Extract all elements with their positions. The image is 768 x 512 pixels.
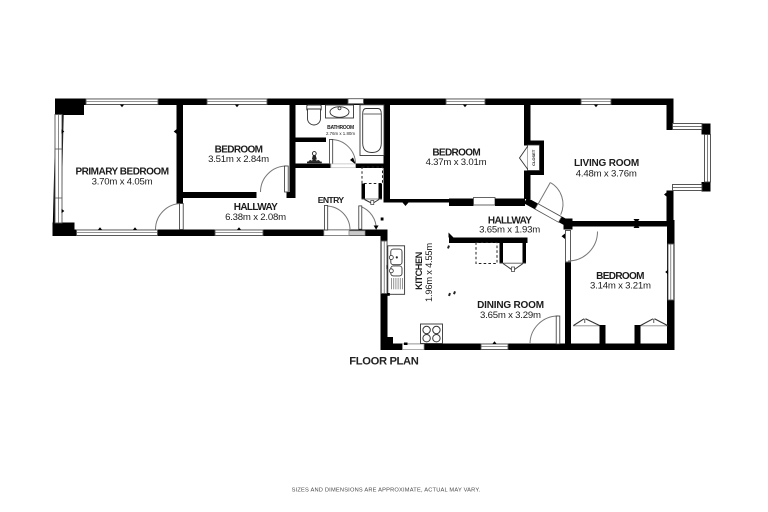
svg-text:6.38m x 2.08m: 6.38m x 2.08m — [225, 212, 286, 223]
svg-text:CLOSET: CLOSET — [531, 149, 536, 166]
svg-text:3.14m x 3.21m: 3.14m x 3.21m — [590, 281, 651, 292]
svg-text:1.96m x 4.55m: 1.96m x 4.55m — [424, 243, 434, 302]
svg-text:3.70m x 4.05m: 3.70m x 4.05m — [92, 176, 153, 187]
svg-text:KITCHEN: KITCHEN — [414, 251, 424, 289]
svg-text:3.65m x 1.93m: 3.65m x 1.93m — [479, 225, 540, 236]
svg-text:FLOOR PLAN: FLOOR PLAN — [349, 356, 418, 368]
svg-text:2.76m x 1.80m: 2.76m x 1.80m — [326, 131, 355, 136]
svg-text:LIVING ROOM: LIVING ROOM — [574, 158, 639, 169]
svg-text:4.48m x 3.76m: 4.48m x 3.76m — [576, 169, 637, 180]
svg-text:SIZES AND DIMENSIONS ARE APPRO: SIZES AND DIMENSIONS ARE APPROXIMATE, AC… — [292, 488, 481, 494]
svg-text:4.37m x 3.01m: 4.37m x 3.01m — [426, 157, 487, 168]
svg-text:3.51m x 2.84m: 3.51m x 2.84m — [208, 154, 269, 165]
svg-text:3.65m x 3.29m: 3.65m x 3.29m — [480, 310, 541, 321]
svg-text:ENTRY: ENTRY — [318, 195, 345, 205]
